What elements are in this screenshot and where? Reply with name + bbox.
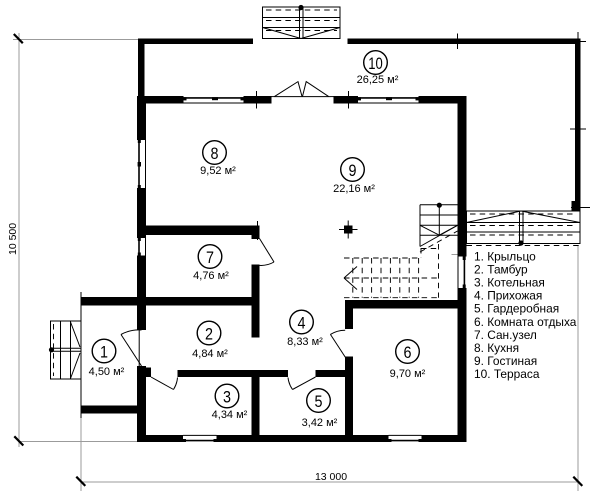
svg-text:9. Гостиная: 9. Гостиная (474, 354, 537, 368)
svg-text:9,70 м²: 9,70 м² (390, 368, 426, 380)
svg-text:4: 4 (298, 314, 306, 333)
svg-text:7. Сан.узел: 7. Сан.узел (474, 328, 537, 342)
svg-text:4. Прихожая: 4. Прихожая (474, 289, 542, 303)
svg-text:6: 6 (404, 343, 412, 362)
svg-text:4,50 м²: 4,50 м² (89, 366, 125, 378)
svg-text:10 500: 10 500 (7, 223, 19, 255)
svg-text:2. Тамбур: 2. Тамбур (474, 263, 528, 277)
svg-text:2: 2 (205, 325, 213, 344)
svg-text:4,34 м²: 4,34 м² (212, 409, 248, 421)
svg-text:9,52 м²: 9,52 м² (200, 165, 236, 177)
svg-text:10. Терраса: 10. Терраса (474, 367, 540, 381)
svg-text:10: 10 (368, 54, 383, 73)
svg-text:9: 9 (349, 161, 357, 180)
svg-text:26,25 м²: 26,25 м² (357, 74, 399, 86)
svg-text:3,42 м²: 3,42 м² (302, 417, 338, 429)
svg-text:3. Котельная: 3. Котельная (474, 276, 545, 290)
svg-text:13 000: 13 000 (315, 471, 347, 483)
svg-text:5: 5 (315, 392, 323, 411)
svg-text:4,76 м²: 4,76 м² (193, 270, 229, 282)
svg-text:8: 8 (211, 144, 219, 163)
svg-text:3: 3 (223, 388, 231, 407)
svg-text:7: 7 (206, 248, 214, 267)
svg-text:4,84 м²: 4,84 м² (192, 348, 228, 360)
svg-text:1: 1 (100, 343, 108, 362)
svg-text:8. Кухня: 8. Кухня (474, 341, 519, 355)
svg-text:8,33 м²: 8,33 м² (287, 336, 323, 348)
svg-text:1. Крыльцо: 1. Крыльцо (474, 250, 536, 264)
svg-text:5. Гардеробная: 5. Гардеробная (474, 302, 559, 316)
svg-text:6. Комната отдыха: 6. Комната отдыха (474, 315, 577, 329)
svg-text:22,16 м²: 22,16 м² (333, 183, 375, 195)
